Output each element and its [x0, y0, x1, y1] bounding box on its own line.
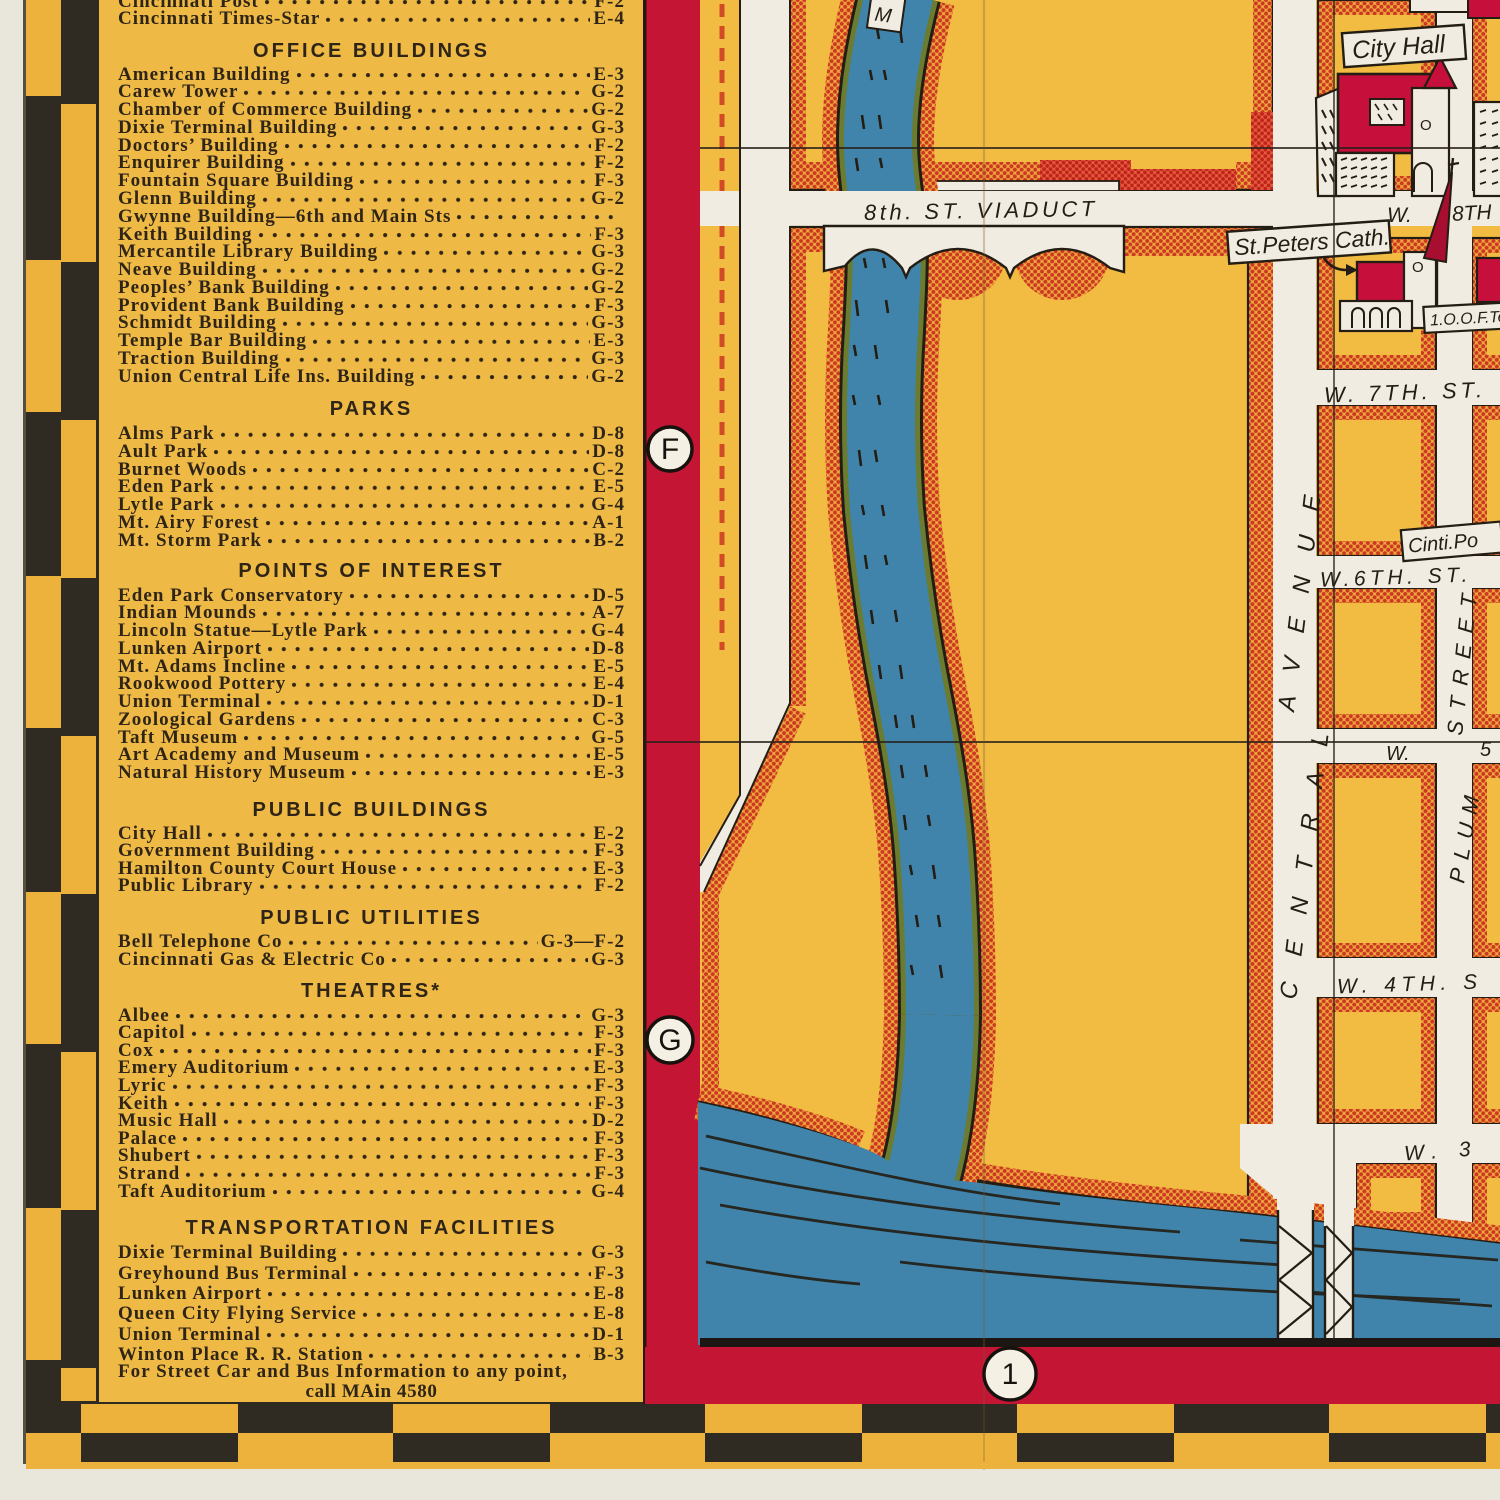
svg-text:G: G — [658, 1024, 681, 1057]
svg-text:8TH: 8TH — [1451, 201, 1493, 226]
svg-text:W.: W. — [1387, 204, 1412, 227]
svg-text:O: O — [1412, 259, 1424, 276]
svg-text:1.O.O.F.Te: 1.O.O.F.Te — [1430, 309, 1500, 330]
svg-text:M: M — [873, 4, 893, 28]
svg-text:O: O — [1420, 117, 1432, 134]
svg-text:1: 1 — [1002, 1358, 1019, 1391]
svg-text:W.: W. — [1386, 743, 1410, 765]
svg-text:F: F — [661, 433, 679, 466]
svg-text:8th. ST. VIADUCT: 8th. ST. VIADUCT — [864, 196, 1098, 225]
